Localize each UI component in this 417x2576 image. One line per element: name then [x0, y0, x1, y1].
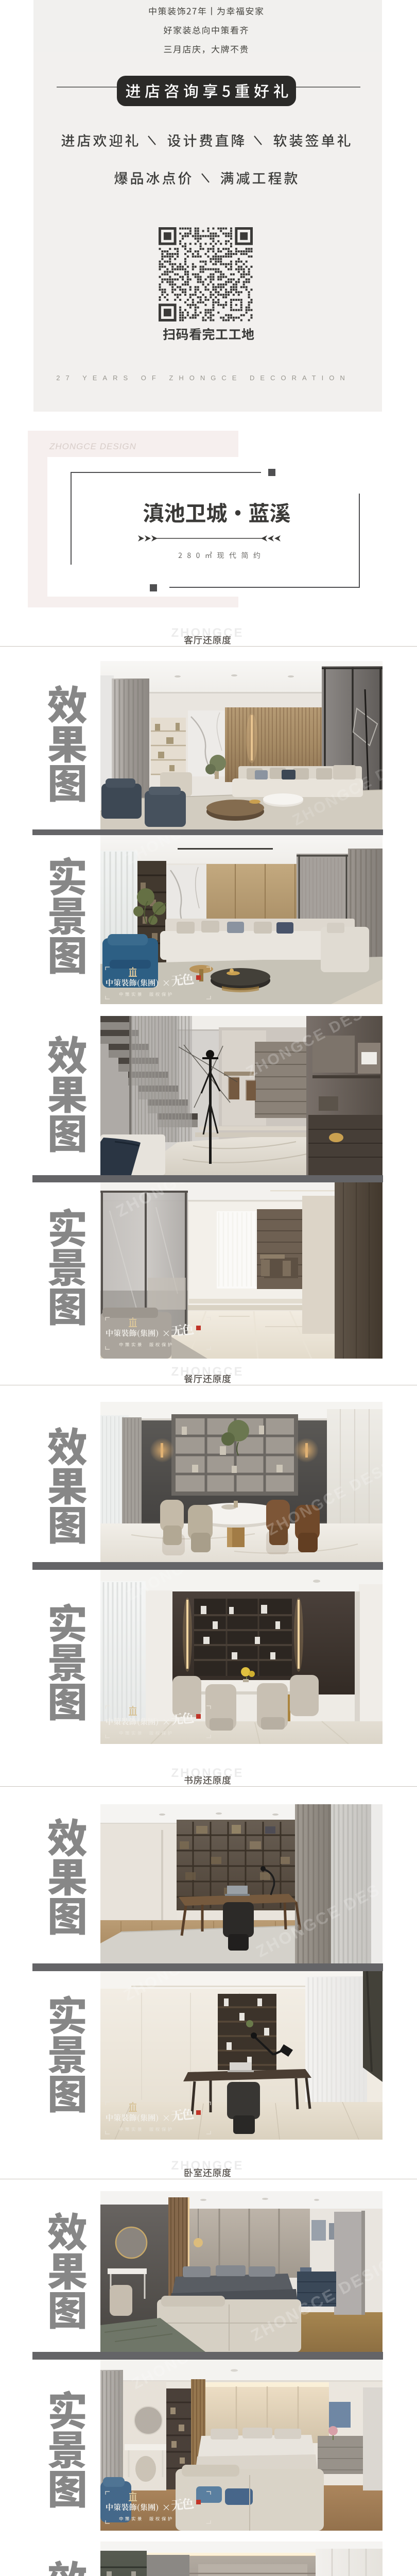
svg-text:ZHONGCE: ZHONGCE: [171, 1766, 244, 1780]
svg-text:ZHONGCE DESIGN: ZHONGCE DESIGN: [49, 442, 136, 451]
svg-text:ZHONGCE: ZHONGCE: [171, 1365, 244, 1379]
svg-text:ZHONGCE: ZHONGCE: [171, 2159, 244, 2173]
svg-text:ZHONGCE: ZHONGCE: [171, 626, 244, 640]
svg-text:27 YEARS OF ZHONGCE DECORATION: 27 YEARS OF ZHONGCE DECORATION: [56, 374, 351, 382]
